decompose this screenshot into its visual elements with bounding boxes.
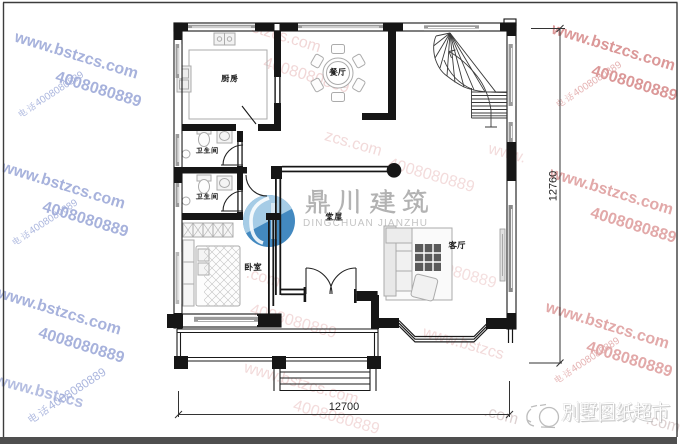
- svg-text:12700: 12700: [329, 401, 360, 413]
- svg-text:DINGCHUAN JIANZHU: DINGCHUAN JIANZHU: [303, 218, 428, 229]
- svg-text:12760: 12760: [548, 171, 560, 202]
